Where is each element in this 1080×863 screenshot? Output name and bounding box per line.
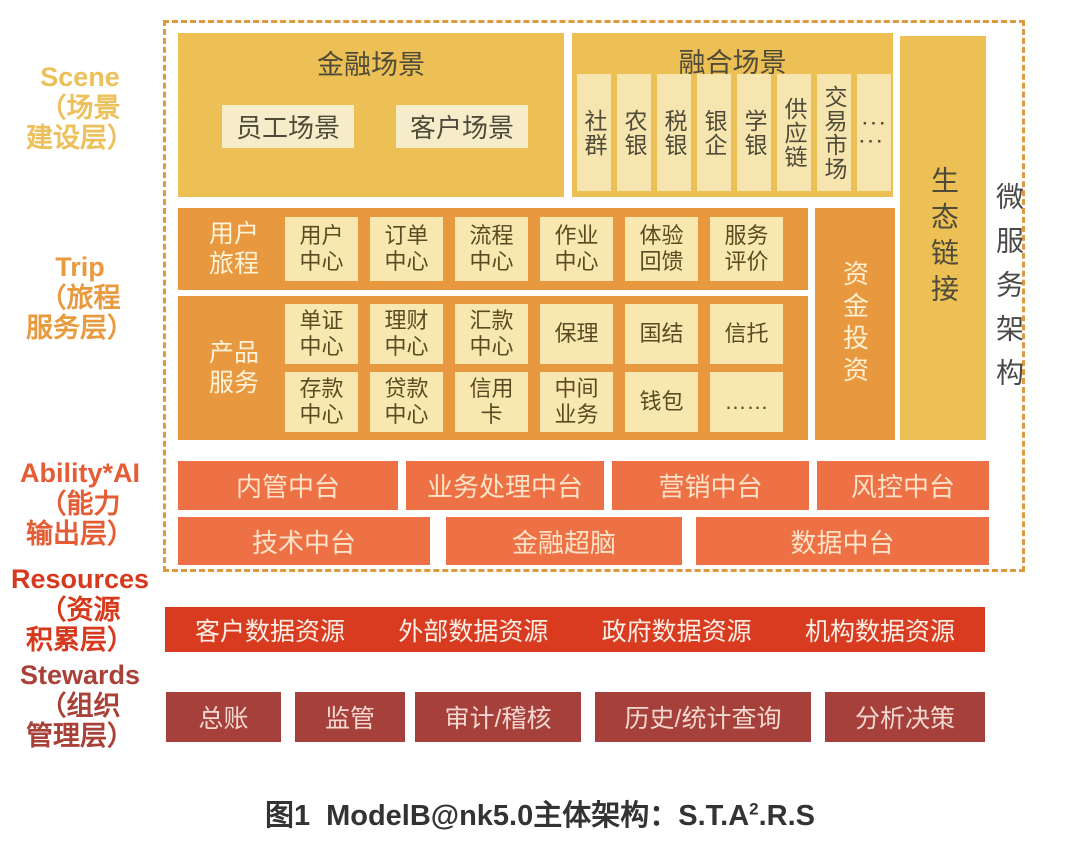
fusion-ellipsis-cell: ··· ··· xyxy=(857,74,891,191)
layer-label-stewards-en: Stewards xyxy=(0,660,160,691)
general-ledger-box: 总账 xyxy=(166,692,281,742)
order-center-cell: 订单 中心 xyxy=(370,217,443,281)
trust-cell: 信托 xyxy=(710,304,783,364)
layer-label-trip-en: Trip xyxy=(0,252,160,283)
layer-label-ability-zh: （能力 输出层） xyxy=(0,489,160,550)
user-journey-box: 用户 旅程 用户 中心 订单 中心 流程 中心 作业 中心 体验 回馈 服务 评… xyxy=(178,208,808,290)
process-center-cell: 流程 中心 xyxy=(455,217,528,281)
institution-data-resource: 机构数据资源 xyxy=(805,612,955,648)
data-platform-box: 数据中台 xyxy=(696,517,989,565)
business-processing-platform-box: 业务处理中台 xyxy=(406,461,604,510)
data-resources-bar: 客户数据资源 外部数据资源 政府数据资源 机构数据资源 xyxy=(165,607,985,652)
document-center-cell: 单证 中心 xyxy=(285,304,358,364)
layer-label-resources-zh: （资源 积累层） xyxy=(0,595,160,656)
fusion-cell-edu-bank: 学银 xyxy=(737,74,771,191)
remittance-center-cell: 汇款 中心 xyxy=(455,304,528,364)
intermediary-business-cell: 中间 业务 xyxy=(540,372,613,432)
financial-scene-box: 金融场景 员工场景 客户场景 xyxy=(178,33,564,197)
deposit-center-cell: 存款 中心 xyxy=(285,372,358,432)
layer-label-ability-en: Ability*AI xyxy=(0,458,160,489)
employee-scene-cell: 员工场景 xyxy=(222,105,354,148)
risk-control-platform-box: 风控中台 xyxy=(817,461,989,510)
intl-settlement-cell: 国结 xyxy=(625,304,698,364)
marketing-platform-box: 营销中台 xyxy=(612,461,809,510)
internal-mgmt-platform-box: 内管中台 xyxy=(178,461,398,510)
figure-caption-number: 图1 xyxy=(265,800,310,832)
eco-link-box: 生态链接 xyxy=(900,36,986,440)
layer-label-ability: Ability*AI （能力 输出层） xyxy=(0,458,160,550)
operation-center-cell: 作业 中心 xyxy=(540,217,613,281)
audit-box: 审计/稽核 xyxy=(415,692,581,742)
government-data-resource: 政府数据资源 xyxy=(602,612,752,648)
customer-scene-cell: 客户场景 xyxy=(396,105,528,148)
layer-label-scene-en: Scene xyxy=(0,62,160,93)
wallet-cell: 钱包 xyxy=(625,372,698,432)
product-service-label: 产品 服务 xyxy=(188,296,280,440)
figure-caption-suffix: .R.S xyxy=(759,800,815,832)
analysis-decision-box: 分析决策 xyxy=(825,692,985,742)
fusion-cell-supply-chain: 供应链 xyxy=(777,74,811,191)
technology-platform-box: 技术中台 xyxy=(178,517,430,565)
loan-center-cell: 贷款 中心 xyxy=(370,372,443,432)
fusion-cell-agri-bank: 农银 xyxy=(617,74,651,191)
experience-feedback-cell: 体验 回馈 xyxy=(625,217,698,281)
product-service-box: 产品 服务 单证 中心 理财 中心 汇款 中心 保理 国结 信托 存款 中心 贷… xyxy=(178,296,808,440)
wealth-center-cell: 理财 中心 xyxy=(370,304,443,364)
external-data-resource: 外部数据资源 xyxy=(398,612,548,648)
fusion-cell-community: 社群 xyxy=(577,74,611,191)
factoring-cell: 保理 xyxy=(540,304,613,364)
layer-label-scene-zh: （场景 建设层） xyxy=(0,93,160,154)
figure-caption-sup: 2 xyxy=(749,799,758,818)
architecture-diagram: Scene （场景 建设层） Trip （旅程 服务层） Ability*AI … xyxy=(0,0,1080,863)
supervision-box: 监管 xyxy=(295,692,405,742)
financial-superbrain-box: 金融超脑 xyxy=(446,517,682,565)
fusion-scene-box: 融合场景 社群 农银 税银 银企 学银 供应链 交易市场 ··· ··· xyxy=(572,33,893,197)
layer-label-resources: Resources （资源 积累层） xyxy=(0,564,160,656)
layer-label-resources-en: Resources xyxy=(0,564,160,595)
user-journey-label: 用户 旅程 xyxy=(188,208,280,290)
service-rating-cell: 服务 评价 xyxy=(710,217,783,281)
fusion-cells: 社群 农银 税银 银企 学银 供应链 交易市场 ··· ··· xyxy=(577,74,891,191)
layer-label-trip-zh: （旅程 服务层） xyxy=(0,283,160,344)
funding-investment-box: 资金投资 xyxy=(815,208,895,440)
credit-card-cell: 信用 卡 xyxy=(455,372,528,432)
user-center-cell: 用户 中心 xyxy=(285,217,358,281)
history-statistics-query-box: 历史/统计查询 xyxy=(595,692,811,742)
product-ellipsis-cell: …… xyxy=(710,372,783,432)
fusion-cell-bank-enterprise: 银企 xyxy=(697,74,731,191)
layer-label-stewards-zh: （组织 管理层） xyxy=(0,691,160,752)
fusion-cell-trading-market: 交易市场 xyxy=(817,74,851,191)
microservice-architecture-label: 微服务架构 xyxy=(988,172,1028,412)
fusion-cell-tax-bank: 税银 xyxy=(657,74,691,191)
layer-label-trip: Trip （旅程 服务层） xyxy=(0,252,160,344)
layer-label-stewards: Stewards （组织 管理层） xyxy=(0,660,160,752)
financial-scene-title: 金融场景 xyxy=(178,43,564,82)
layer-label-scene: Scene （场景 建设层） xyxy=(0,62,160,154)
figure-caption-main: ModelB@nk5.0主体架构：S.T.A xyxy=(326,800,749,832)
figure-caption: 图1ModelB@nk5.0主体架构：S.T.A2.R.S xyxy=(0,792,1080,834)
customer-data-resource: 客户数据资源 xyxy=(195,612,345,648)
